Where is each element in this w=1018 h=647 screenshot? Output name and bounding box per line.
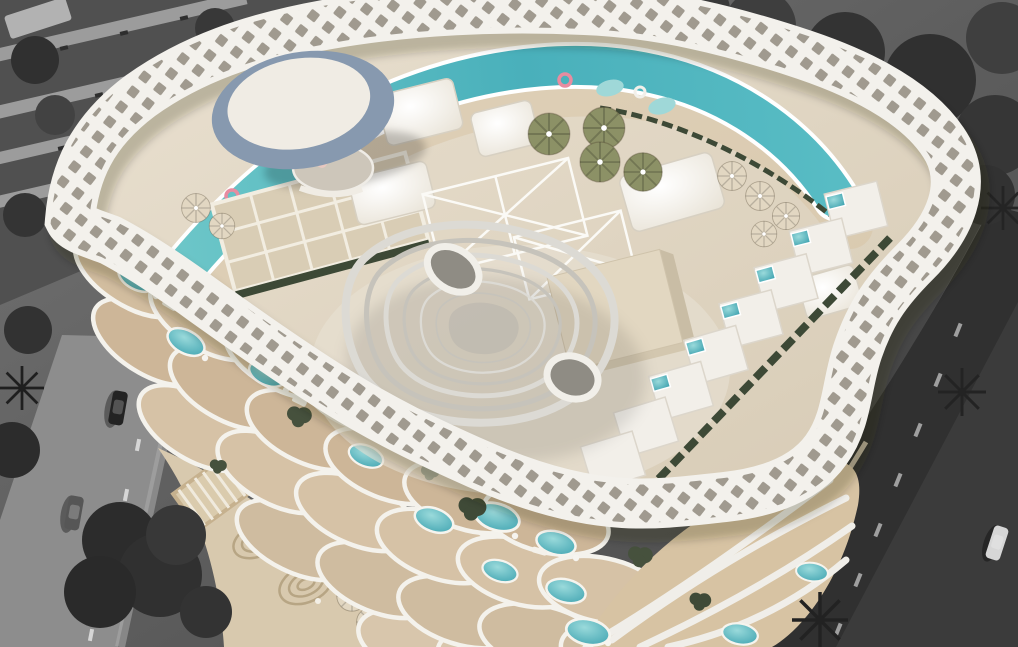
render-canvas: Aerial rendering of a latticed resort to…	[0, 0, 1018, 647]
parasol-olive	[580, 142, 620, 182]
palm-tree	[938, 368, 986, 416]
parasol-beige	[746, 182, 775, 211]
parasol-beige	[751, 221, 777, 247]
building	[61, 9, 963, 647]
aerial-render: Aerial rendering of a latticed resort to…	[0, 0, 1018, 647]
parasol-olive	[528, 113, 570, 155]
parasol-beige	[209, 213, 235, 239]
parasol-beige	[772, 202, 799, 229]
parasol-beige	[182, 194, 211, 223]
parasol-beige	[718, 162, 747, 191]
parasol-olive	[624, 153, 662, 191]
palm-tree	[0, 366, 44, 410]
